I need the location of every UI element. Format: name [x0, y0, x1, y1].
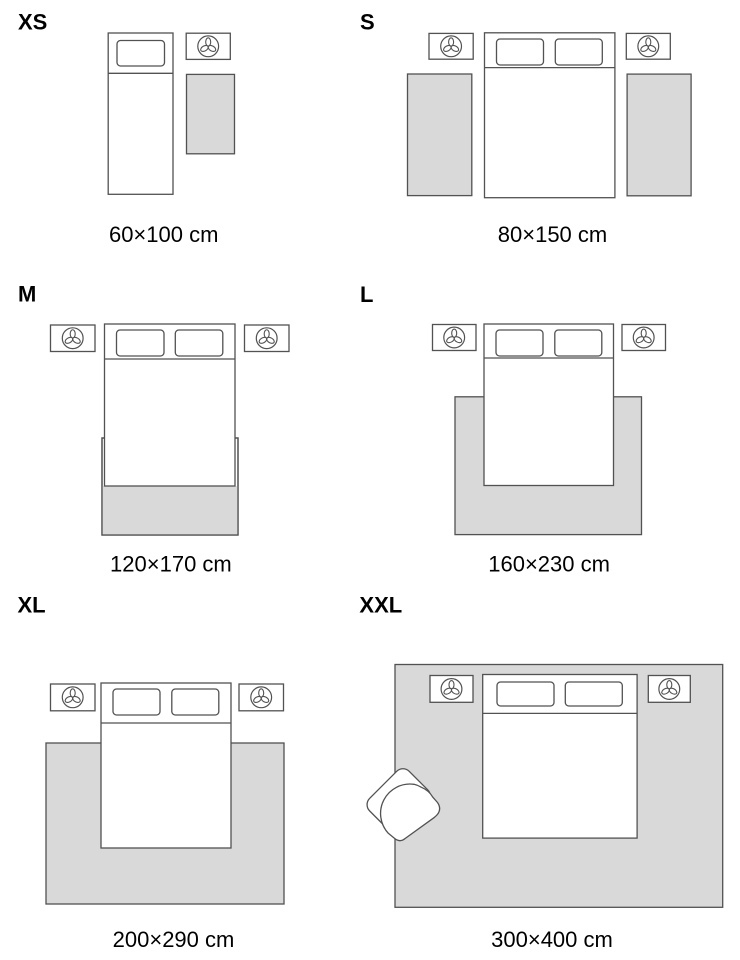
svg-text:200×290 cm: 200×290 cm — [113, 927, 235, 952]
svg-text:300×400 cm: 300×400 cm — [491, 927, 613, 952]
svg-text:120×170 cm: 120×170 cm — [110, 552, 232, 577]
svg-text:80×150 cm: 80×150 cm — [498, 222, 607, 247]
svg-text:M: M — [18, 282, 36, 307]
svg-text:160×230 cm: 160×230 cm — [488, 552, 610, 577]
svg-text:L: L — [360, 282, 373, 307]
svg-text:S: S — [360, 10, 375, 35]
svg-text:60×100 cm: 60×100 cm — [109, 222, 218, 247]
svg-text:XS: XS — [18, 10, 47, 35]
svg-text:XL: XL — [18, 593, 46, 618]
svg-text:XXL: XXL — [359, 593, 402, 618]
